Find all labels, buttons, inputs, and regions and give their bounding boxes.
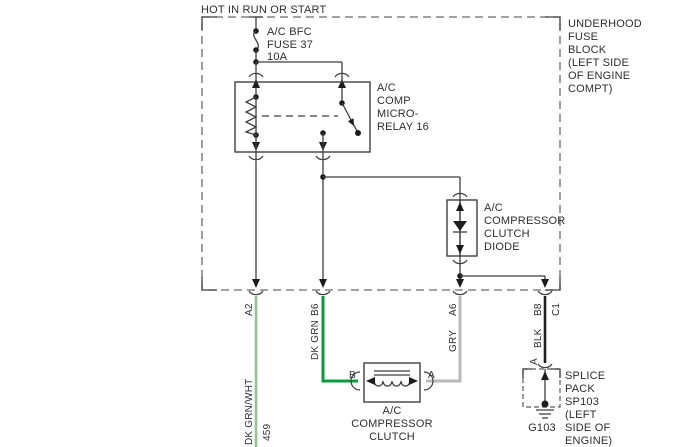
wiring-diagram: HOT IN RUN OR START UNDERHOOD FUSE BLOCK… <box>0 0 700 447</box>
relay-label-line: COMP <box>377 95 411 107</box>
fuse-label-line: A/C BFC <box>267 26 312 38</box>
fuse-label-line: FUSE 37 <box>267 39 313 51</box>
ground-id-label: G103 <box>528 422 556 434</box>
diagram-canvas: HOT IN RUN OR START UNDERHOOD FUSE BLOCK… <box>0 0 700 447</box>
clutch-pin-a-label: A <box>428 370 435 381</box>
splice-label-line: ENGINE) <box>565 435 612 447</box>
diode-box <box>447 193 477 263</box>
splice-pin-a-label: A <box>529 358 540 365</box>
wire-blk-label: BLK <box>533 328 544 348</box>
fuse-label-line: 10A <box>267 51 288 63</box>
diode-label-line: COMPRESSOR <box>484 215 565 227</box>
clutch-box: B A <box>349 363 435 402</box>
splice-label-line: SIDE OF <box>565 422 610 434</box>
diode-label-line: CLUTCH <box>484 228 530 240</box>
diode-label: A/C COMPRESSOR CLUTCH DIODE <box>484 202 565 253</box>
fuse-block-label-line: (LEFT SIDE <box>568 57 629 69</box>
diode-output-wiring <box>457 273 545 286</box>
clutch-label: A/C COMPRESSOR CLUTCH <box>351 405 432 443</box>
splice-pack: A G103 <box>523 358 560 434</box>
relay-label-line: RELAY 16 <box>377 121 429 133</box>
ground-icon <box>536 410 554 418</box>
fuse-block-label-line: OF ENGINE <box>568 70 630 82</box>
wire-dk-grn <box>323 296 358 381</box>
relay-label-line: A/C <box>377 82 396 94</box>
clutch-coil-symbol <box>366 371 418 386</box>
relay-switch-symbol <box>320 100 361 136</box>
diode-symbol <box>453 221 467 232</box>
splice-label-line: SP103 <box>565 396 599 408</box>
splice-label-line: (LEFT <box>565 409 597 421</box>
diode-label-line: DIODE <box>484 241 520 253</box>
relay-label-line: MICRO- <box>377 108 419 120</box>
relay-box <box>235 82 370 152</box>
wire-gry-label: GRY <box>448 330 459 352</box>
clutch-pin-b-label: B <box>349 370 356 381</box>
terminal-b6-label: B6 <box>310 303 321 316</box>
relay-coil-symbol <box>246 94 259 138</box>
fuse-block-label: UNDERHOOD FUSE BLOCK (LEFT SIDE OF ENGIN… <box>568 18 642 95</box>
splice-label-line: SPLICE <box>565 370 605 382</box>
terminal-a6-label: A6 <box>448 303 459 316</box>
splice-label: SPLICE PACK SP103 (LEFT SIDE OF ENGINE) <box>565 370 612 447</box>
fuse-label: A/C BFC FUSE 37 10A <box>267 26 313 63</box>
diode-label-line: A/C <box>484 202 503 214</box>
clutch-label-line: COMPRESSOR <box>351 418 432 430</box>
terminal-b8-label: B8 <box>533 303 544 316</box>
clutch-label-line: CLUTCH <box>369 431 415 443</box>
terminal-c1-label: C1 <box>551 303 562 316</box>
terminal-labels: A2 B6 A6 B8 C1 <box>244 303 562 316</box>
splice-label-line: PACK <box>565 383 595 395</box>
clutch-label-line: A/C <box>383 405 402 417</box>
terminal-a2-label: A2 <box>244 303 255 316</box>
relay-output-wiring <box>249 133 460 286</box>
fuse-symbol <box>249 17 263 65</box>
power-source-label: HOT IN RUN OR START <box>201 4 326 16</box>
relay-label: A/C COMP MICRO- RELAY 16 <box>377 82 429 133</box>
fuse-block-label-line: COMPT) <box>568 83 613 95</box>
fuse-block-label-line: FUSE <box>568 31 598 43</box>
wire-dk-grn-wht-label: DK GRN/WHT <box>244 379 255 445</box>
boundary-connectors <box>249 279 552 295</box>
fuse-block-label-line: UNDERHOOD <box>568 18 642 30</box>
fuse-block-label-line: BLOCK <box>568 44 607 56</box>
circuit-459-label: 459 <box>262 423 273 441</box>
wire-dk-grn-label: DK GRN <box>310 320 321 360</box>
